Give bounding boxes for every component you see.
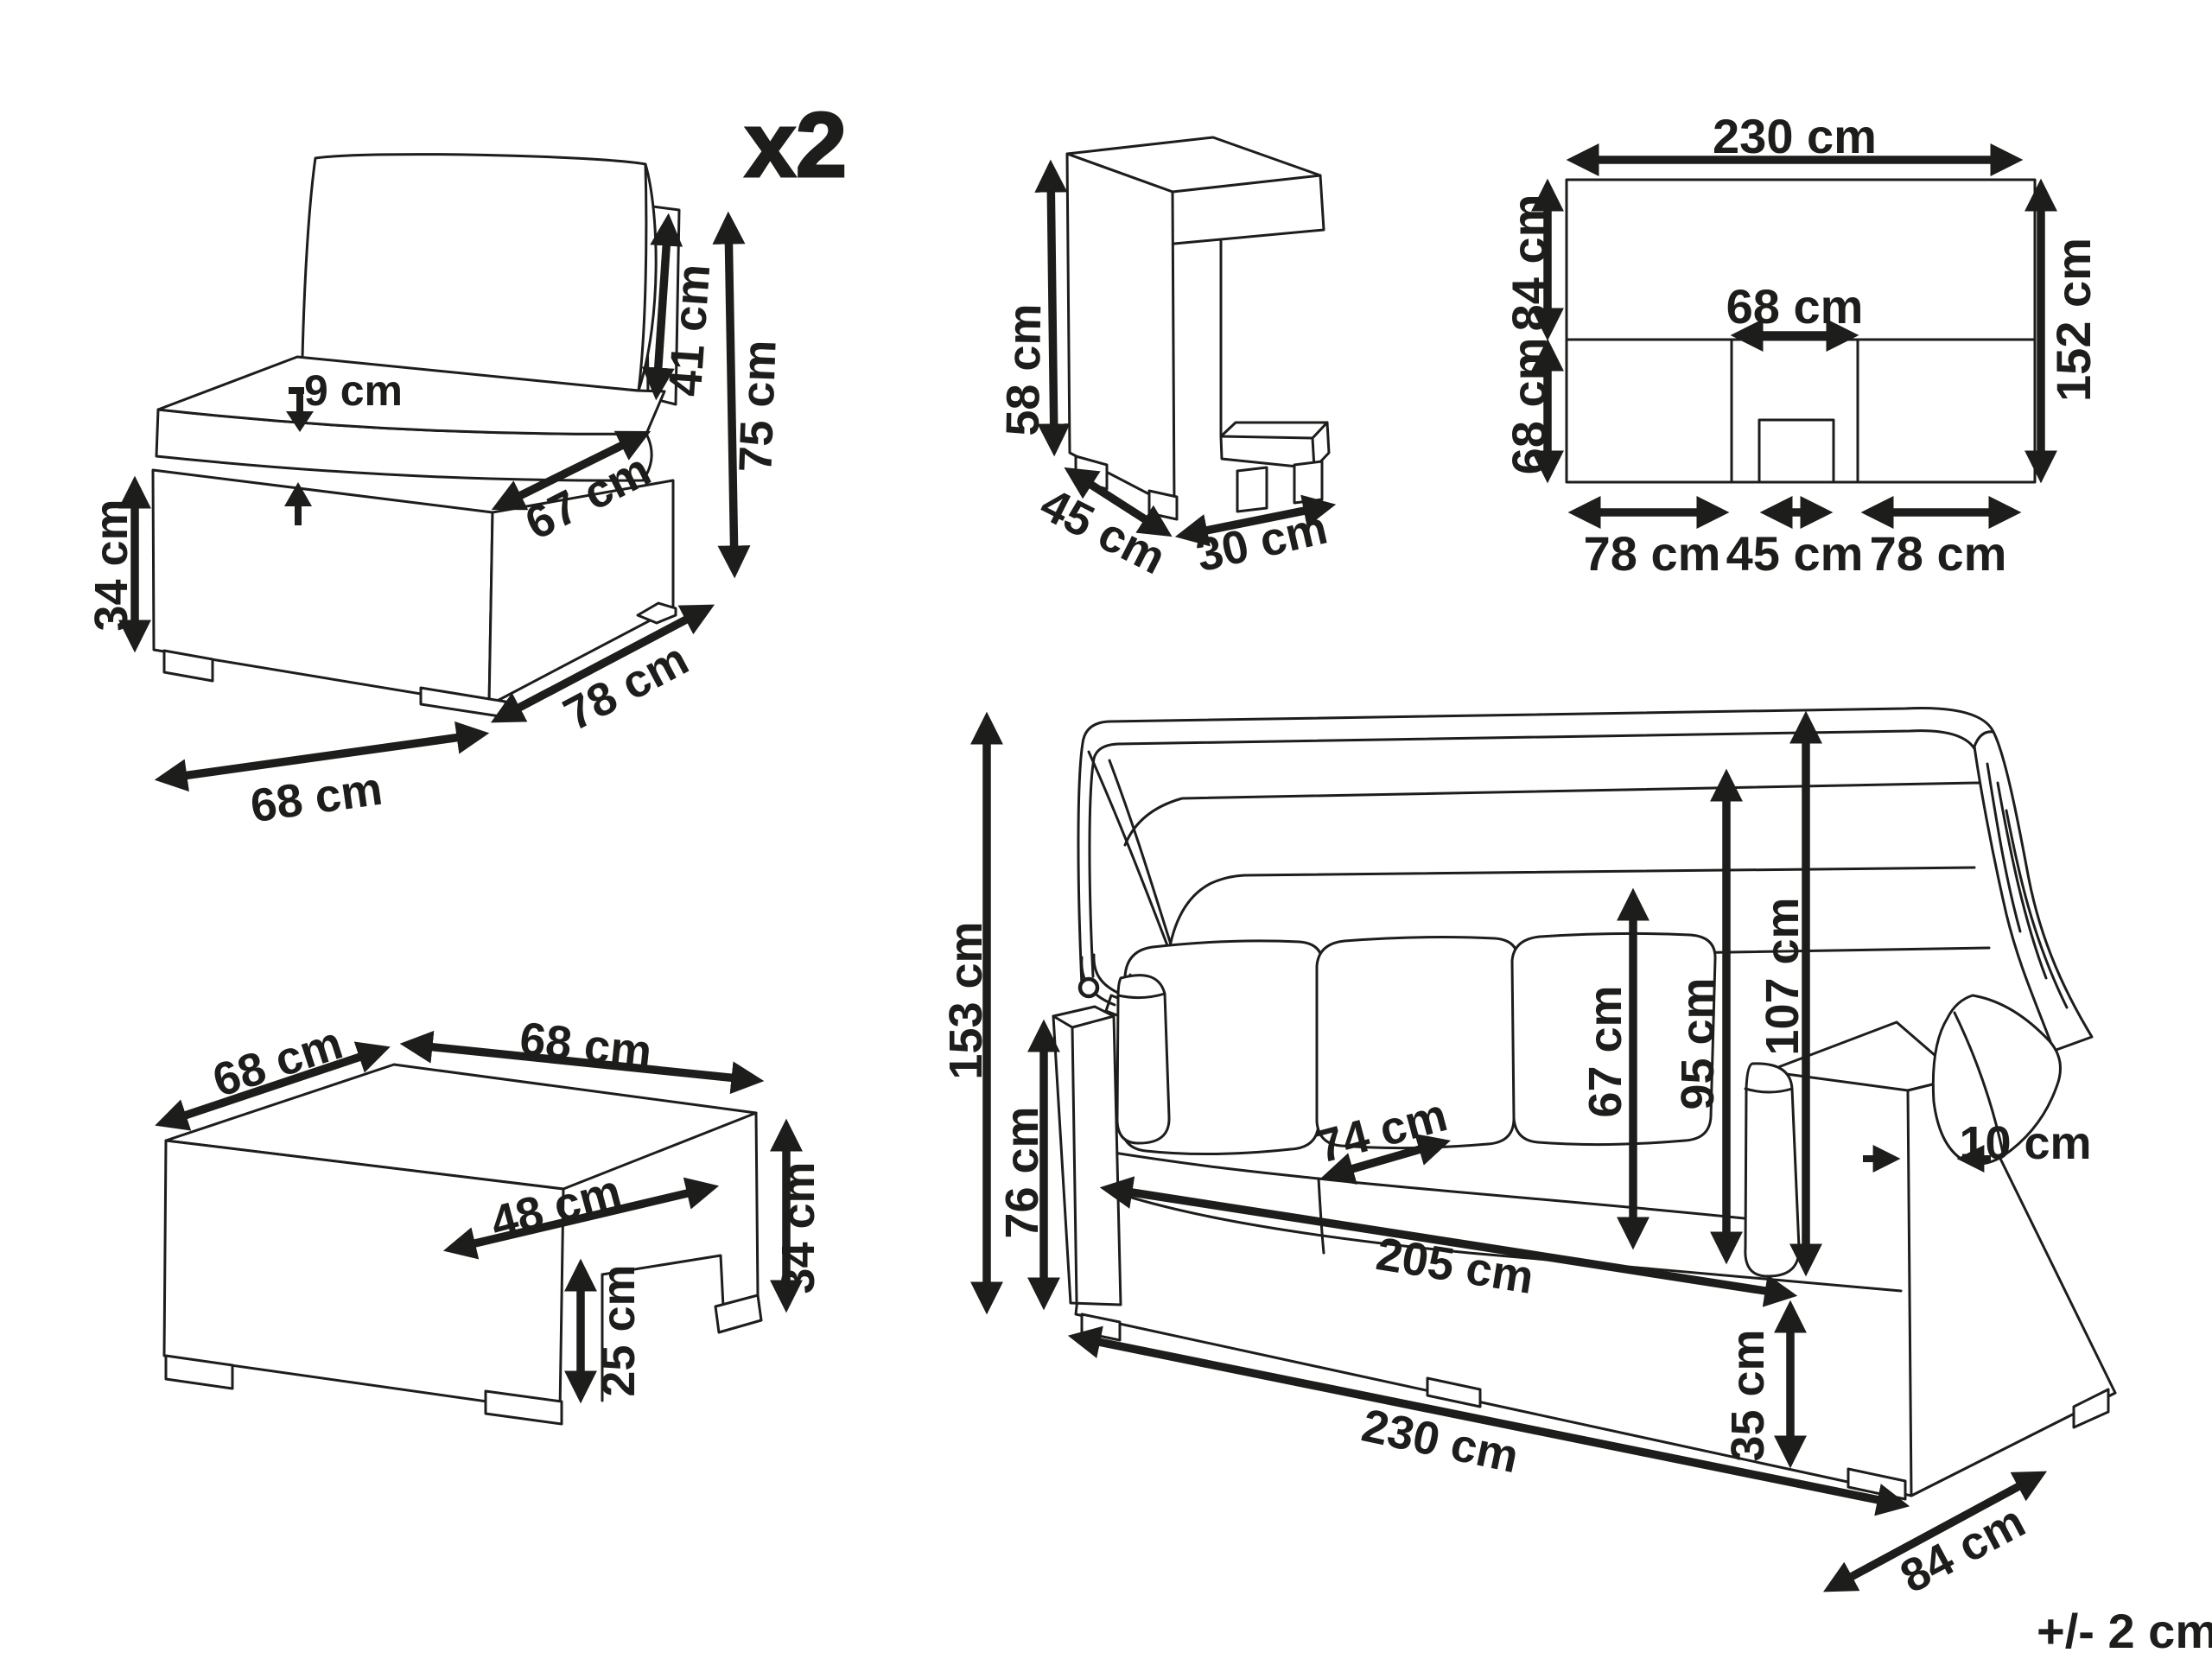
- svg-text:75 cm: 75 cm: [729, 339, 785, 473]
- svg-text:68 cm: 68 cm: [1502, 338, 1556, 475]
- svg-text:76 cm: 76 cm: [996, 1106, 1048, 1238]
- svg-text:153 cm: 153 cm: [940, 921, 992, 1079]
- svg-text:152 cm: 152 cm: [2046, 238, 2101, 402]
- svg-text:45 cm: 45 cm: [1726, 526, 1864, 581]
- svg-text:x2: x2: [745, 94, 847, 196]
- svg-text:41 cm: 41 cm: [659, 263, 721, 398]
- svg-text:78 cm: 78 cm: [1584, 526, 1721, 581]
- svg-text:107 cm: 107 cm: [1757, 897, 1808, 1055]
- svg-text:35 cm: 35 cm: [1722, 1329, 1774, 1461]
- svg-text:9 cm: 9 cm: [304, 366, 403, 415]
- svg-text:230 cm: 230 cm: [1713, 109, 1877, 163]
- svg-text:68 cm: 68 cm: [1726, 279, 1864, 334]
- svg-text:+/- 2 cm: +/- 2 cm: [2037, 1604, 2212, 1658]
- svg-text:34 cm: 34 cm: [86, 499, 137, 631]
- svg-text:34 cm: 34 cm: [772, 1161, 824, 1294]
- svg-text:78 cm: 78 cm: [1870, 526, 2007, 581]
- svg-text:67 cm: 67 cm: [1580, 985, 1631, 1117]
- svg-text:95 cm: 95 cm: [1672, 977, 1724, 1109]
- svg-text:10 cm: 10 cm: [1959, 1117, 2091, 1169]
- svg-text:84 cm: 84 cm: [1502, 194, 1556, 332]
- svg-text:25 cm: 25 cm: [593, 1264, 645, 1396]
- svg-text:58 cm: 58 cm: [997, 303, 1052, 436]
